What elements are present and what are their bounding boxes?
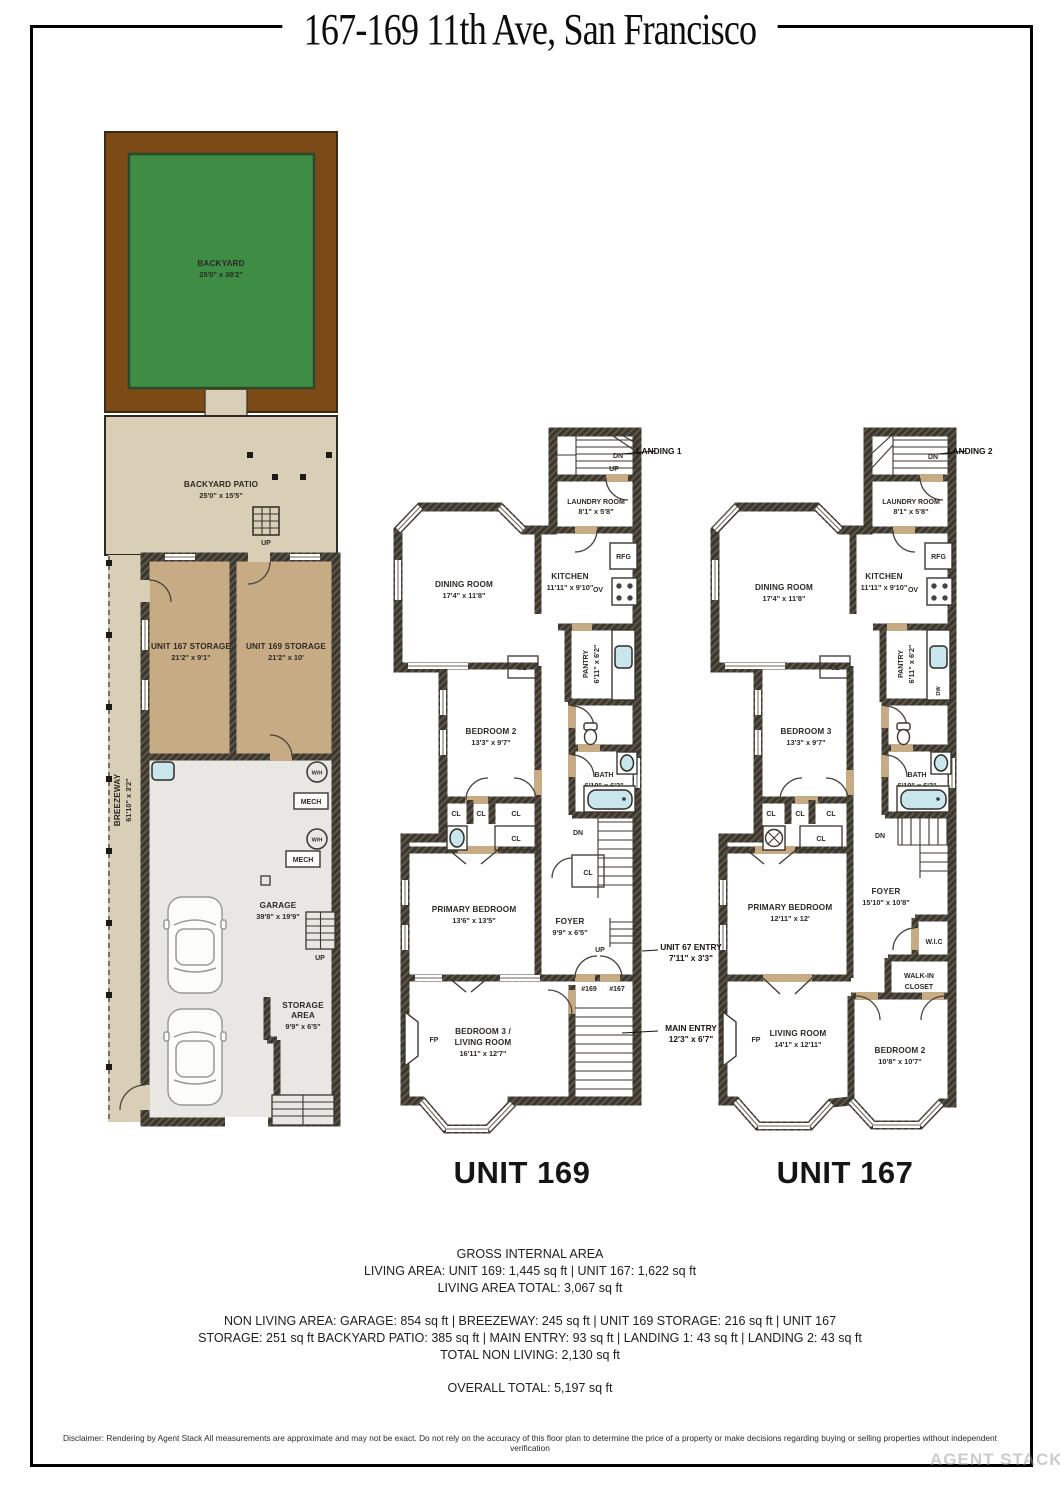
unit167-wic-label: W.I.C: [925, 939, 942, 946]
unit167-foyer-label: FOYER: [872, 887, 901, 896]
floorplan-page: { "title": "167-169 11th Ave, San Franci…: [0, 0, 1060, 1498]
unit169-fireplace: FP: [405, 1012, 439, 1066]
unit169-bedroom3-label2: LIVING ROOM: [455, 1038, 512, 1047]
svg-text:CL: CL: [816, 836, 826, 843]
disclaimer-text: Disclaimer: Rendering by Agent Stack All…: [60, 1433, 1000, 1453]
unit167-dn2-label: DN: [875, 833, 885, 840]
unit167-bedroom3-dims: 13'3" x 9'7": [786, 738, 826, 747]
unit169-bedroom3-dims: 16'11" x 12'7": [459, 1049, 507, 1058]
door-169-label: #169: [581, 986, 597, 993]
unit169-title: UNIT 169: [454, 1155, 591, 1190]
unit169-cl3: CL: [511, 811, 521, 818]
svg-text:CL: CL: [517, 665, 527, 672]
unit169-bath-label: BATH: [595, 772, 614, 779]
unit167-pantry: PANTRY 6'11" x 6'2" DW: [898, 630, 950, 700]
storage167-label: UNIT 167 STORAGE: [151, 642, 231, 651]
unit169-foyer-closet: CL: [552, 855, 604, 887]
svg-text:FP: FP: [752, 1037, 761, 1044]
unit169-landing-stairs: DN UP: [553, 434, 637, 476]
unit167-washer: [763, 826, 785, 850]
unit167-living-label: LIVING ROOM: [770, 1029, 827, 1038]
unit169-cl4: CL: [495, 826, 537, 850]
svg-text:CL: CL: [583, 870, 593, 877]
unit167-bath-sink: [931, 752, 951, 774]
patio-dims: 25'0" x 15'5": [199, 491, 243, 500]
unit169-toilet: [584, 723, 597, 745]
svg-text:W/H: W/H: [312, 838, 323, 844]
summary-nonliving-line1: NON LIVING AREA: GARAGE: 854 sq ft | BRE…: [130, 1313, 930, 1330]
storage169-label: UNIT 169 STORAGE: [246, 642, 326, 651]
svg-text:RFG: RFG: [616, 554, 631, 561]
unit167-living-dims: 14'1" x 12'11": [774, 1040, 822, 1049]
unit169-foyer-dims: 9'9" x 6'5": [552, 928, 588, 937]
summary-overall-total: OVERALL TOTAL: 5,197 sq ft: [130, 1380, 930, 1397]
unit169-bedroom2-dims: 13'3" x 9'7": [471, 738, 511, 747]
storage169-dims: 21'2" x 10': [268, 653, 304, 662]
unit167-dining-dims: 17'4" x 11'8": [763, 594, 806, 603]
unit169-cl1: CL: [451, 811, 461, 818]
unit167-bedroom2-dims: 10'8" x 10'7": [878, 1057, 922, 1066]
main-entry-dims: 12'3" x 6'7": [669, 1034, 714, 1044]
breezeway-dims: 61'10" x 3'2": [124, 778, 133, 822]
unit167-dw-label: DW: [936, 686, 942, 696]
svg-text:MECH: MECH: [293, 857, 314, 864]
svg-text:MECH: MECH: [301, 799, 322, 806]
unit167-cl2: CL: [795, 811, 805, 818]
unit169-dining-dims: 17'4" x 11'8": [443, 591, 486, 600]
car-1: [164, 897, 226, 993]
unit167-bedroom2-label: BEDROOM 2: [875, 1046, 926, 1055]
unit-169-plan: DN UP LAUNDRY ROOM 8'1" x 5'8" DINING RO…: [398, 432, 637, 1129]
summary-living-line: LIVING AREA: UNIT 169: 1,445 sq ft | UNI…: [130, 1263, 930, 1280]
main-entry-stairs: [575, 1008, 635, 1089]
unit169-dn2-label: DN: [573, 830, 583, 837]
water-heater-1: W/H: [307, 762, 327, 782]
unit167-refrigerator: RFG: [925, 543, 952, 569]
unit169-laundry-label: LAUNDRY ROOM: [567, 499, 625, 506]
unit167-laundry-dims: 8'1" x 5'8": [893, 507, 929, 516]
unit167-walkin-label2: CLOSET: [905, 984, 934, 991]
page-title: 167-169 11th Ave, San Francisco: [282, 4, 777, 55]
storage-area-label2: AREA: [291, 1011, 315, 1020]
unit169-kitchen-label: KITCHEN: [551, 572, 588, 581]
water-heater-2: W/H: [307, 829, 327, 849]
landing1-note: LANDING 1: [636, 446, 681, 456]
unit167-title: UNIT 167: [777, 1155, 914, 1190]
yard-path: [205, 390, 247, 418]
svg-text:6'11" x 6'2": 6'11" x 6'2": [592, 644, 601, 683]
unit167-bathtub: [897, 786, 949, 812]
garage-label: GARAGE: [260, 901, 297, 910]
unit169-entry-up-stairs: UP: [595, 918, 637, 954]
patio-up-label: UP: [261, 540, 271, 547]
unit169-primary-label: PRIMARY BEDROOM: [432, 905, 517, 914]
patio-label: BACKYARD PATIO: [184, 480, 259, 489]
breezeway: [108, 555, 145, 1122]
summary-living-total: LIVING AREA TOTAL: 3,067 sq ft: [130, 1280, 930, 1297]
svg-text:6'11" x 6'2": 6'11" x 6'2": [907, 644, 916, 683]
unit167-down-stairs: [898, 818, 952, 878]
unit169-bathtub: [584, 786, 635, 812]
unit167-walkin-label1: WALK-IN: [904, 973, 934, 980]
unit167-foyer-dims: 15'10" x 10'8": [862, 898, 910, 907]
storage-area-dims: 9'9" x 6'5": [285, 1022, 321, 1031]
landing2-note: LANDING 2: [947, 446, 992, 456]
unit167-toilet: [897, 723, 910, 745]
backyard-dims: 25'0" x 38'2": [199, 270, 243, 279]
unit169-bedroom3-label1: BEDROOM 3 /: [455, 1027, 511, 1036]
garage-dims: 39'8" x 19'9": [256, 912, 300, 921]
unit169-laundry-dims: 8'1" x 5'8": [578, 507, 614, 516]
unit169-up2-label: UP: [595, 947, 605, 954]
unit169-pantry: PANTRY 6'11" x 6'2": [583, 630, 635, 700]
unit169-bath-sink: [617, 752, 637, 774]
unit169-hall-sink: [447, 826, 467, 850]
entry-stairs-ground: [272, 1095, 334, 1125]
backyard-label: BACKYARD: [197, 259, 244, 268]
unit167-kitchen-label: KITCHEN: [865, 572, 902, 581]
unit-167-plan: DN LAUNDRY ROOM 8'1" x 5'8" DINING ROOM …: [715, 432, 952, 1126]
svg-text:OV: OV: [593, 587, 603, 594]
mech-box-2: MECH: [286, 851, 320, 867]
unit167-dn-label: DN: [928, 454, 938, 461]
summary-nonliving-total: TOTAL NON LIVING: 2,130 sq ft: [130, 1347, 930, 1364]
unit169-kitchen-dims: 11'11" x 9'10": [547, 583, 594, 592]
unit167-laundry-label: LAUNDRY ROOM: [882, 499, 940, 506]
summary-heading: GROSS INTERNAL AREA: [130, 1246, 930, 1263]
unit167-stove: OV: [908, 578, 952, 605]
unit169-dining-label: DINING ROOM: [435, 580, 493, 589]
garage-up-label: UP: [315, 955, 325, 962]
unit169-stove: OV: [593, 578, 637, 605]
unit167-kitchen-dims: 11'11" x 9'10": [861, 583, 908, 592]
svg-text:PANTRY: PANTRY: [898, 650, 905, 678]
main-entry-note: MAIN ENTRY: [665, 1023, 717, 1033]
summary-nonliving-line2: STORAGE: 251 sq ft BACKYARD PATIO: 385 s…: [130, 1330, 930, 1347]
area-summary: GROSS INTERNAL AREA LIVING AREA: UNIT 16…: [130, 1246, 930, 1397]
storage-area-label1: STORAGE: [282, 1001, 324, 1010]
unit67-entry-note: UNIT 67 ENTRY: [660, 942, 722, 952]
svg-text:FP: FP: [430, 1037, 439, 1044]
unit167-fireplace: FP: [723, 1012, 761, 1066]
unit167-bedroom3-label: BEDROOM 3: [781, 727, 832, 736]
renderer-watermark: AGENT STACK: [930, 1450, 1060, 1470]
svg-text:W/H: W/H: [312, 771, 323, 777]
unit167-bath-label: BATH: [908, 772, 927, 779]
unit167-landing-stairs: DN: [870, 434, 952, 476]
unit169-primary-dims: 13'6" x 13'5": [452, 916, 496, 925]
unit167-cl1: CL: [766, 811, 776, 818]
unit169-cl2: CL: [476, 811, 486, 818]
unit169-dn-label: DN: [613, 453, 623, 460]
svg-text:PANTRY: PANTRY: [583, 650, 590, 678]
unit167-primary-dims: 12'11" x 12': [770, 914, 810, 923]
svg-text:RFG: RFG: [931, 554, 946, 561]
unit169-foyer-label: FOYER: [556, 917, 585, 926]
unit67-entry-dims: 7'11" x 3'3": [669, 953, 713, 963]
car-2: [164, 1009, 226, 1105]
unit169-up-label: UP: [609, 466, 619, 473]
svg-text:OV: OV: [908, 587, 918, 594]
unit169-bedroom2-label: BEDROOM 2: [466, 727, 517, 736]
unit167-cl3: CL: [826, 811, 836, 818]
mech-box-1: MECH: [294, 793, 328, 809]
unit169-refrigerator: RFG: [610, 543, 637, 569]
unit167-cl4: CL: [800, 826, 842, 850]
door-167-label: #167: [609, 986, 625, 993]
breezeway-label: BREEZEWAY: [113, 773, 122, 826]
page-title-wrap: 167-169 11th Ave, San Francisco: [0, 4, 1060, 55]
utility-sink: [152, 762, 174, 780]
unit167-dining-label: DINING ROOM: [755, 583, 813, 592]
storage167-dims: 21'2" x 9'1": [171, 653, 211, 662]
svg-text:CL: CL: [830, 665, 840, 672]
svg-text:CL: CL: [511, 836, 521, 843]
ground-level-plan: BACKYARD 25'0" x 38'2" BACKYARD PATIO 25…: [105, 132, 337, 1125]
unit167-primary-label: PRIMARY BEDROOM: [748, 903, 833, 912]
